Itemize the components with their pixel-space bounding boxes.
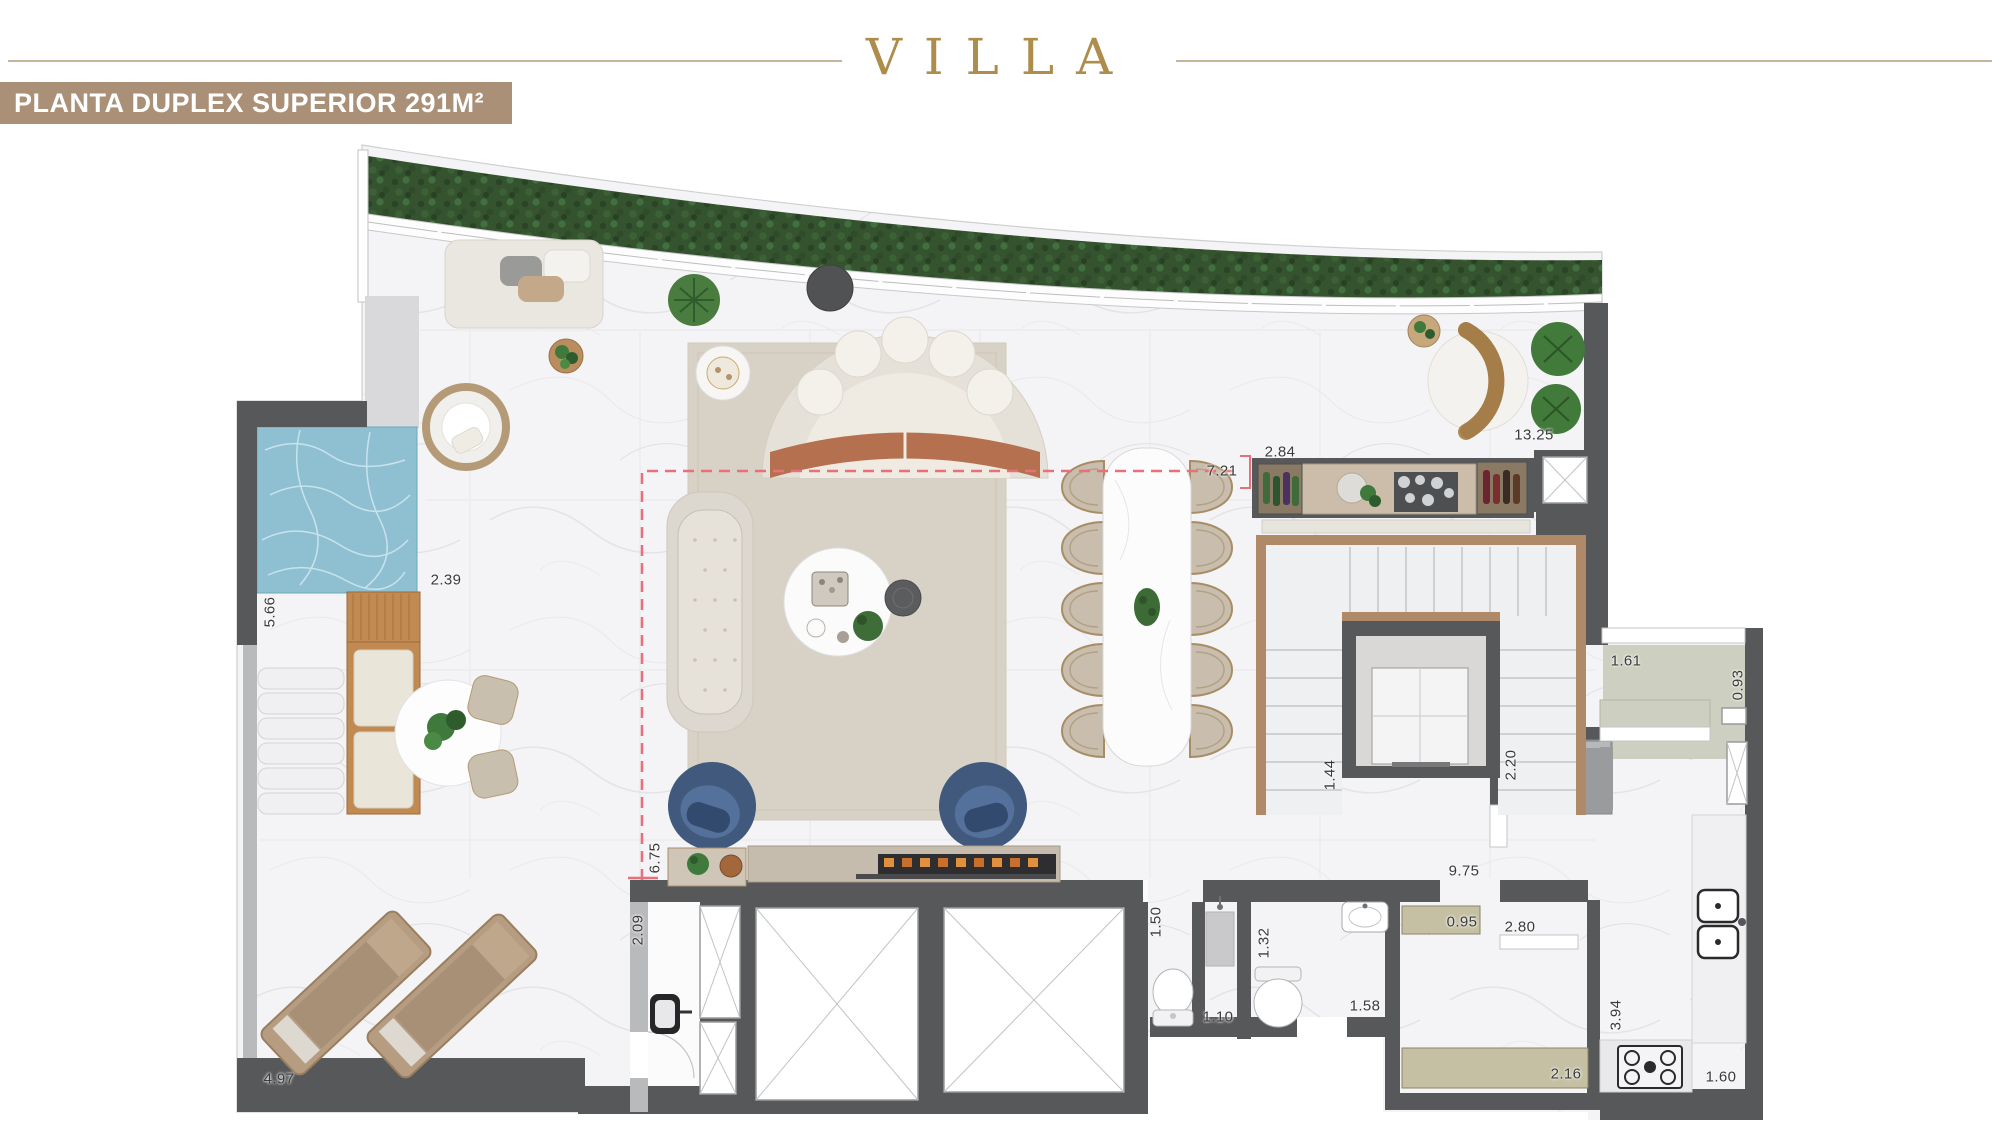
dimension-label: 9.75 [1449,863,1480,880]
dimension-label: 4.97 [264,1071,295,1088]
wicker-armchair [426,387,506,467]
tv-console-fireplace [748,846,1060,882]
dimension-label: 7.21 [1207,463,1238,480]
dimension-label: 2.84 [1265,444,1296,461]
dining-set [1062,448,1232,766]
dimension-label: 2.09 [630,915,647,946]
dimension-label: 6.75 [647,843,664,874]
floor-plan-drawing [0,0,2000,1125]
elevator [1342,612,1500,778]
dimension-label: 1.58 [1350,998,1381,1015]
grass-plant [668,274,720,326]
dimension-label: 2.39 [431,572,462,589]
toilet-2 [1254,967,1302,1027]
fire-pit [807,265,853,311]
potted-plant-small [549,339,583,373]
floor-plan-page: { "header": { "logo_text": "VILLA", "ban… [0,0,2000,1125]
round-stool [885,580,921,616]
dimension-label: 2.20 [1503,750,1520,781]
floor-plan-canvas: 5.662.394.976.752.097.212.8413.251.610.9… [0,0,2000,1125]
dimension-label: 1.61 [1611,653,1642,670]
table-centerpiece-plant [1134,588,1160,626]
console-side-table [668,848,746,886]
wall-sink [1342,902,1388,932]
side-table [696,346,750,400]
chaise-lounge-sofa [667,492,753,732]
dimension-label: 2.16 [1551,1066,1582,1083]
shower-area [1206,912,1234,966]
dimension-label: 1.32 [1256,928,1273,959]
dimension-label: 2.80 [1505,919,1536,936]
outdoor-white-daybed [445,240,603,328]
toilet [1153,969,1193,1026]
dimension-label: 3.94 [1608,1000,1625,1031]
dimension-label: 0.95 [1447,914,1478,931]
dimension-label: 0.93 [1730,670,1747,701]
pool [257,427,417,593]
coffee-table [784,548,892,656]
glass-facade-left [358,150,368,302]
pool-ledge [365,296,419,428]
stove [1618,1046,1682,1088]
dimension-label: 5.66 [262,597,279,628]
dimension-label: 1.10 [1203,1009,1234,1026]
dimension-label: 1.60 [1706,1069,1737,1086]
dimension-label: 13.25 [1514,427,1554,444]
bar-counter [1252,458,1534,533]
dimension-label: 1.50 [1148,907,1165,938]
pool-deck [347,592,420,642]
dimension-label: 1.44 [1322,760,1339,791]
